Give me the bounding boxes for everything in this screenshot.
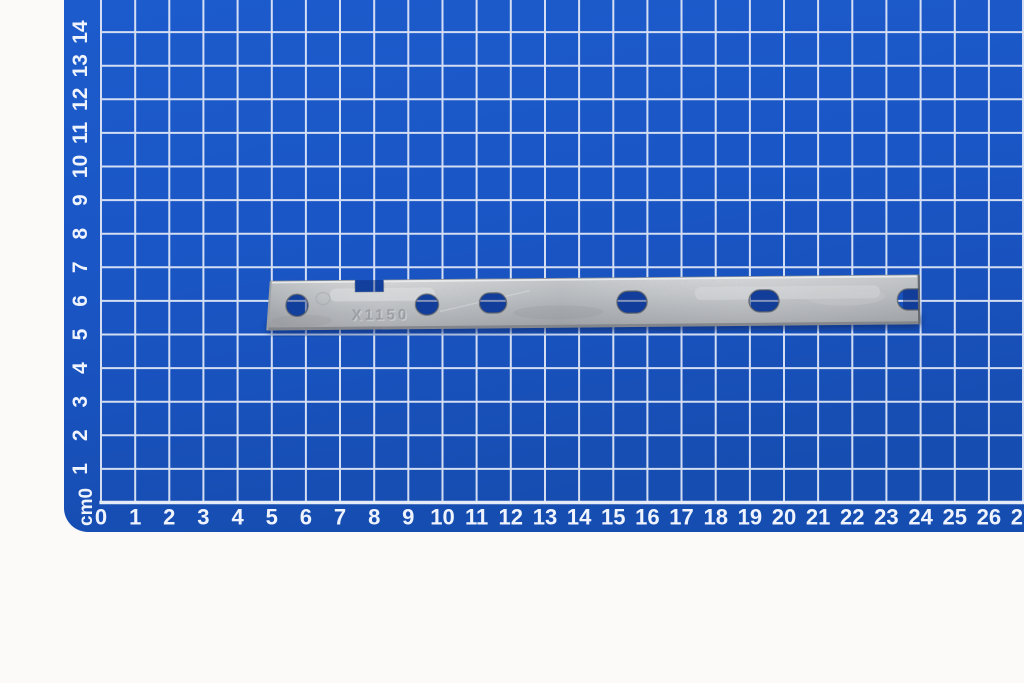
left-ruler-label: 5 [69,328,92,340]
bottom-ruler-label: 15 [601,505,625,530]
notch-shadow [355,280,384,293]
scene-svg: 0123456789101112131415161718192021222324… [0,0,1024,683]
bottom-ruler-label: 16 [635,505,659,530]
metal-strip: X1150 X1150 [265,273,924,335]
left-ruler-label: 12 [69,88,92,111]
left-ruler-label: 10 [69,155,92,178]
bottom-ruler-label: 19 [738,505,762,530]
photo-metal-strip-on-cutting-mat: 0123456789101112131415161718192021222324… [0,0,1024,683]
bottom-ruler-label: 27 [1011,505,1024,530]
bottom-ruler-label: 12 [499,505,523,530]
left-ruler-label: 6 [69,295,92,307]
left-ruler-label: 4 [69,362,92,374]
bottom-ruler-label: 3 [197,505,209,530]
end-slot-shadow [903,288,920,311]
bottom-ruler-label: 22 [840,505,864,530]
left-ruler-label: 8 [69,228,92,240]
bottom-ruler-label: 21 [806,505,830,530]
bottom-ruler-label: 8 [368,505,380,530]
left-ruler-label: 9 [69,194,92,206]
bottom-ruler-label: 9 [402,505,414,530]
left-ruler-label: 11 [69,121,92,144]
bottom-ruler-label: 2 [163,505,175,530]
left-ruler-label: 14 [69,20,92,44]
bottom-ruler-label: 4 [231,505,244,530]
bottom-ruler-label: 20 [772,505,796,530]
bottom-ruler-label: 26 [977,505,1001,530]
bottom-ruler-label: 24 [908,505,933,530]
embossed-text: X1150 [352,306,410,324]
bottom-ruler-label: 10 [430,505,454,530]
bottom-ruler-label: 13 [533,505,557,530]
left-ruler-label: 7 [69,261,92,273]
bottom-ruler-label: 5 [266,505,278,530]
bottom-ruler-label: 25 [943,505,967,530]
bottom-ruler-label: 11 [465,505,488,530]
bottom-ruler-label: 23 [874,505,898,530]
bottom-ruler-label: 14 [567,505,592,530]
bottom-ruler-label: 6 [300,505,312,530]
bottom-ruler-label: 7 [334,505,346,530]
bottom-ruler-label: 17 [669,505,693,530]
left-ruler-label: 1 [69,463,92,475]
bottom-ruler-label: 1 [129,505,141,530]
left-ruler-label: 2 [69,429,92,441]
corner-unit-label: cm0 [76,488,97,526]
left-ruler-label: 3 [69,396,92,408]
bottom-ruler-label: 18 [703,505,727,530]
left-ruler-label: 13 [69,54,92,77]
